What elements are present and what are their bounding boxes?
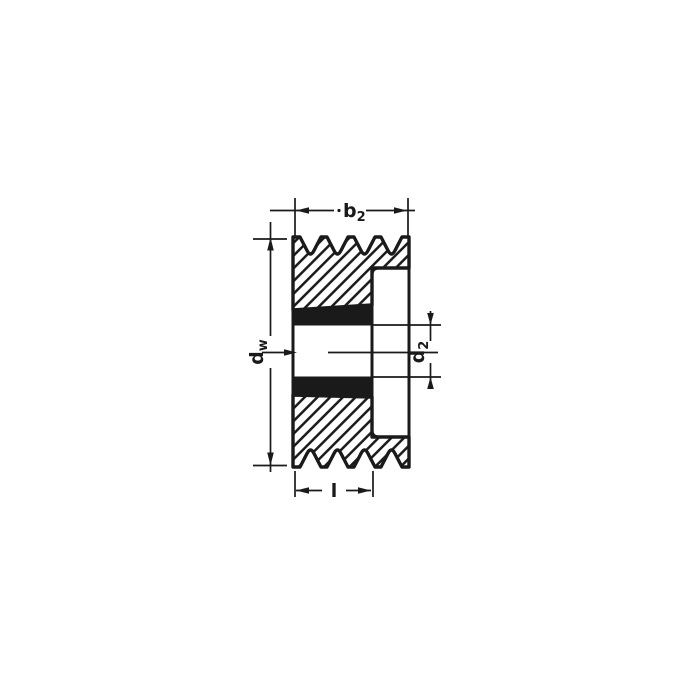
drawing-canvas: b2 dw d2 l: [0, 0, 700, 700]
pulley-cross-section-drawing: b2 dw d2 l: [0, 0, 700, 700]
taper-bore-band-bottom: [293, 377, 372, 397]
l-label: l: [331, 480, 338, 502]
b2-chain-dot: [337, 209, 340, 212]
paper-background: [0, 0, 700, 700]
